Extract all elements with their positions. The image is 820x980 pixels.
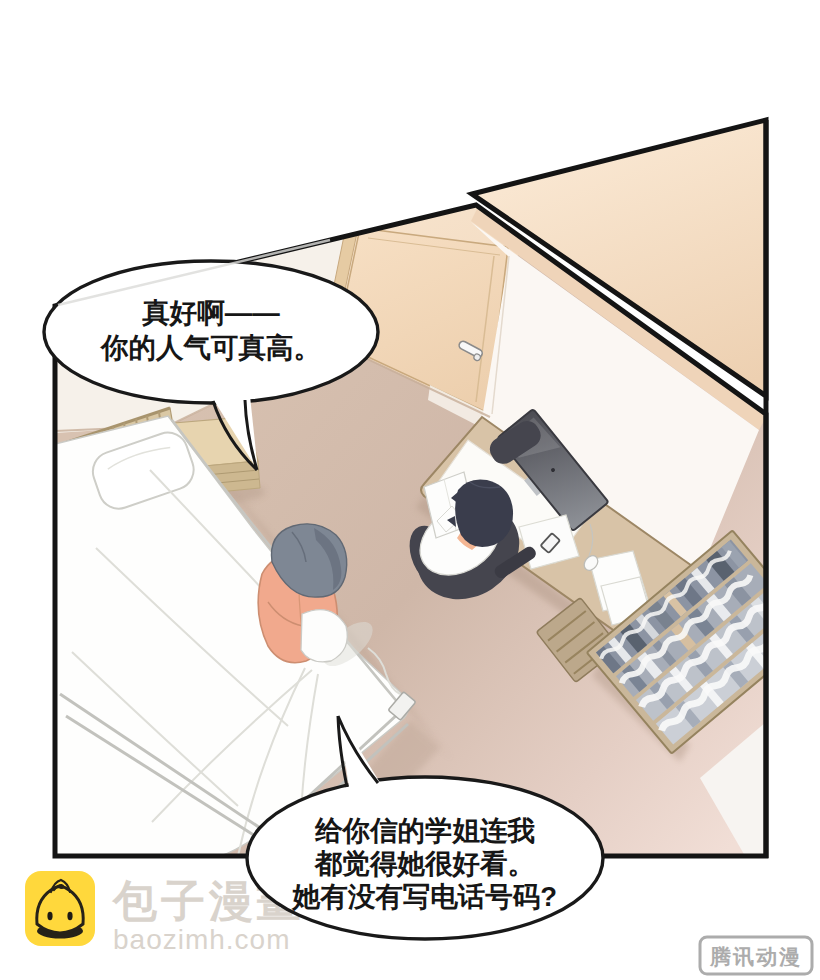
dark-hair: [455, 479, 513, 547]
bubble-bottom-line-1: 给你信的学姐连我: [314, 815, 535, 846]
comic-panel-scene: 包子漫畫 baozimh.com 真好啊—— 你的人气可真高。 给你信的学姐连我…: [0, 0, 820, 980]
baozi-icon: [25, 871, 95, 946]
baozi-site-url: baozimh.com: [113, 924, 291, 955]
bubble-bottom-line-2: 都觉得她很好看。: [314, 848, 535, 879]
bubble-bottom-line-3: 她有没有写电话号码?: [291, 881, 557, 912]
comic-page: 包子漫畫 baozimh.com 真好啊—— 你的人气可真高。 给你信的学姐连我…: [0, 0, 820, 980]
tencent-logo: 腾讯动漫: [700, 937, 812, 974]
tencent-label: 腾讯动漫: [709, 945, 802, 968]
bubble-top-line-2: 你的人气可真高。: [100, 332, 321, 363]
bubble-top-line-1: 真好啊——: [141, 297, 280, 328]
